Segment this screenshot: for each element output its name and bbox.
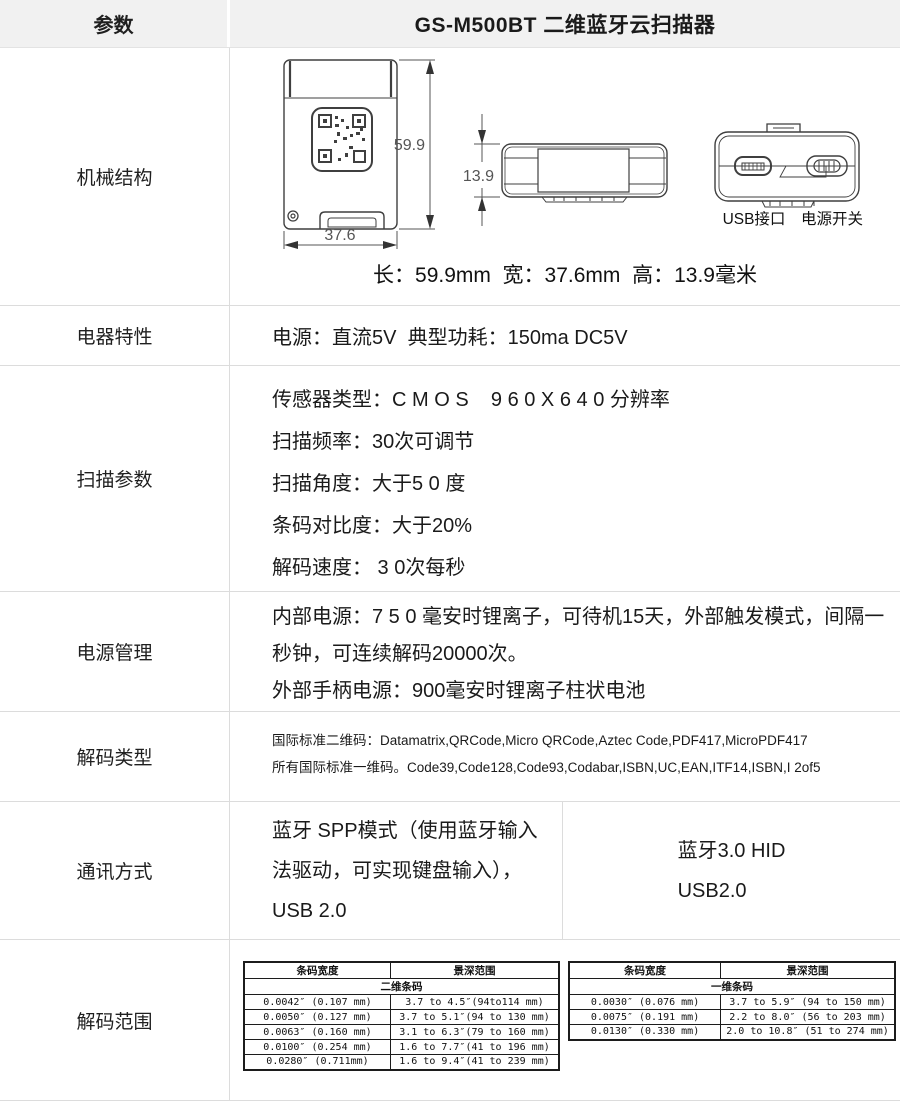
power-line-handle: 外部手柄电源：900毫安时锂离子柱状电池: [272, 673, 892, 710]
usb-port-label: USB接口: [723, 210, 786, 228]
cell-range: 3.7 to 4.5″(94to114 mm): [390, 995, 559, 1010]
front-view-body: [284, 60, 397, 229]
group-header-1d: 一维条码: [569, 979, 895, 995]
cell-width: 0.0280″ (0.711mm): [244, 1055, 390, 1070]
table-group-row: 二维条码: [244, 979, 559, 995]
cell-range: 3.7 to 5.9″ (94 to 150 mm): [721, 995, 895, 1010]
decode-range-table-2d: 条码宽度 景深范围 二维条码 0.0042″ (0.107 mm) 3.7 to…: [243, 961, 560, 1071]
cell-width: 0.0075″ (0.191 mm): [569, 1010, 721, 1025]
dim-height-value: 59.9: [394, 137, 425, 154]
col-header-barcode-width: 条码宽度: [569, 962, 721, 979]
row-power-management: 电源管理 内部电源：7 5 0 毫安时锂离子，可待机15天，外部触发模式，间隔一…: [0, 592, 900, 712]
cell-range: 1.6 to 7.7″(41 to 196 mm): [390, 1040, 559, 1055]
electrical-text: 电源：直流5V 典型功耗：150ma DC5V: [230, 306, 900, 365]
table-row: 0.0100″ (0.254 mm) 1.6 to 7.7″(41 to 196…: [244, 1040, 559, 1055]
table-row: 0.0042″ (0.107 mm) 3.7 to 4.5″(94to114 m…: [244, 995, 559, 1010]
spec-sheet: 参数 GS-M500BT 二维蓝牙云扫描器 机械结构: [0, 0, 900, 1101]
col-header-barcode-width: 条码宽度: [244, 962, 390, 979]
decode-types-1d: 所有国际标准一维码。Code39,Code128,Code93,Codabar,…: [272, 754, 900, 781]
side-clip: [538, 149, 629, 192]
mechanical-drawing: 59.9 37.6 13.9 USB接口 电源开关: [242, 54, 892, 256]
row-communication: 通讯方式 蓝牙 SPP模式（使用蓝牙输入法驱动，可实现键盘输入），USB 2.0…: [0, 802, 900, 940]
table-header-row: 条码宽度 景深范围: [244, 962, 559, 979]
cell-width: 0.0050″ (0.127 mm): [244, 1010, 390, 1025]
cell-range: 1.6 to 9.4″(41 to 239 mm): [390, 1055, 559, 1070]
scan-line-contrast: 条码对比度：大于20%: [272, 505, 890, 547]
row-scan-params: 扫描参数 传感器类型：C M O S 9 6 0 X 6 4 0 分辨率 扫描频…: [0, 366, 900, 592]
scan-line-decode-speed: 解码速度： 3 0次每秒: [272, 547, 890, 589]
row-label-mechanical: 机械结构: [0, 48, 230, 305]
dim-width-value: 37.6: [324, 227, 355, 244]
group-header-2d: 二维条码: [244, 979, 559, 995]
cell-width: 0.0100″ (0.254 mm): [244, 1040, 390, 1055]
row-label-communication: 通讯方式: [0, 802, 230, 939]
col-header-depth-of-field: 景深范围: [390, 962, 559, 979]
dimension-summary: 长：59.9mm 宽：37.6mm 高：13.9毫米: [230, 256, 900, 296]
cell-width: 0.0030″ (0.076 mm): [569, 995, 721, 1010]
table-row: 0.0075″ (0.191 mm) 2.2 to 8.0″ (56 to 20…: [569, 1010, 895, 1025]
communication-usb: USB2.0: [678, 871, 747, 911]
row-decode-range: 解码范围 条码宽度 景深范围 二维条码 0.0042″ (0.107 m: [0, 940, 900, 1101]
col-header-depth-of-field: 景深范围: [721, 962, 895, 979]
row-label-electrical: 电器特性: [0, 306, 230, 365]
decode-types-2d: 国际标准二维码：Datamatrix,QRCode,Micro QRCode,A…: [272, 727, 900, 754]
cell-range: 3.7 to 5.1″(94 to 130 mm): [390, 1010, 559, 1025]
power-switch-label: 电源开关: [801, 210, 863, 228]
cell-width: 0.0063″ (0.160 mm): [244, 1025, 390, 1040]
row-label-scan-params: 扫描参数: [0, 366, 230, 591]
cell-range: 2.0 to 10.8″ (51 to 274 mm): [721, 1025, 895, 1040]
scan-line-frequency: 扫描频率：30次可调节: [272, 421, 890, 463]
table-row: 0.0130″ (0.330 mm) 2.0 to 10.8″ (51 to 2…: [569, 1025, 895, 1040]
communication-hid-block: 蓝牙3.0 HID USB2.0: [563, 802, 900, 939]
row-mechanical: 机械结构: [0, 48, 900, 306]
communication-bt-hid: 蓝牙3.0 HID: [678, 831, 786, 871]
communication-spp-text: 蓝牙 SPP模式（使用蓝牙输入法驱动，可实现键盘输入），USB 2.0: [230, 802, 563, 939]
table-group-row: 一维条码: [569, 979, 895, 995]
row-label-power: 电源管理: [0, 592, 230, 711]
front-led-ring: [288, 211, 298, 221]
row-label-decode-range: 解码范围: [0, 940, 230, 1100]
table-header-row: 条码宽度 景深范围: [569, 962, 895, 979]
header-row: 参数 GS-M500BT 二维蓝牙云扫描器: [0, 0, 900, 48]
qr-code-pattern: [319, 115, 365, 162]
decode-range-table-1d: 条码宽度 景深范围 一维条码 0.0030″ (0.076 mm) 3.7 to…: [568, 961, 896, 1041]
table-row: 0.0280″ (0.711mm) 1.6 to 9.4″(41 to 239 …: [244, 1055, 559, 1070]
cell-width: 0.0042″ (0.107 mm): [244, 995, 390, 1010]
row-electrical: 电器特性 电源：直流5V 典型功耗：150ma DC5V: [0, 306, 900, 366]
scan-line-sensor: 传感器类型：C M O S 9 6 0 X 6 4 0 分辨率: [272, 379, 890, 421]
product-title: GS-M500BT 二维蓝牙云扫描器: [230, 0, 900, 47]
scan-line-angle: 扫描角度：大于5 0 度: [272, 463, 890, 505]
table-row: 0.0063″ (0.160 mm) 3.1 to 6.3″(79 to 160…: [244, 1025, 559, 1040]
row-decode-types: 解码类型 国际标准二维码：Datamatrix,QRCode,Micro QRC…: [0, 712, 900, 802]
dim-thickness-value: 13.9: [463, 168, 494, 185]
row-label-decode-types: 解码类型: [0, 712, 230, 801]
table-row: 0.0030″ (0.076 mm) 3.7 to 5.9″ (94 to 15…: [569, 995, 895, 1010]
cell-range: 2.2 to 8.0″ (56 to 203 mm): [721, 1010, 895, 1025]
table-row: 0.0050″ (0.127 mm) 3.7 to 5.1″(94 to 130…: [244, 1010, 559, 1025]
cell-range: 3.1 to 6.3″(79 to 160 mm): [390, 1025, 559, 1040]
power-line-internal: 内部电源：7 5 0 毫安时锂离子，可待机15天，外部触发模式，间隔一秒钟，可连…: [272, 599, 892, 673]
header-param-col: 参数: [0, 0, 230, 47]
cell-width: 0.0130″ (0.330 mm): [569, 1025, 721, 1040]
